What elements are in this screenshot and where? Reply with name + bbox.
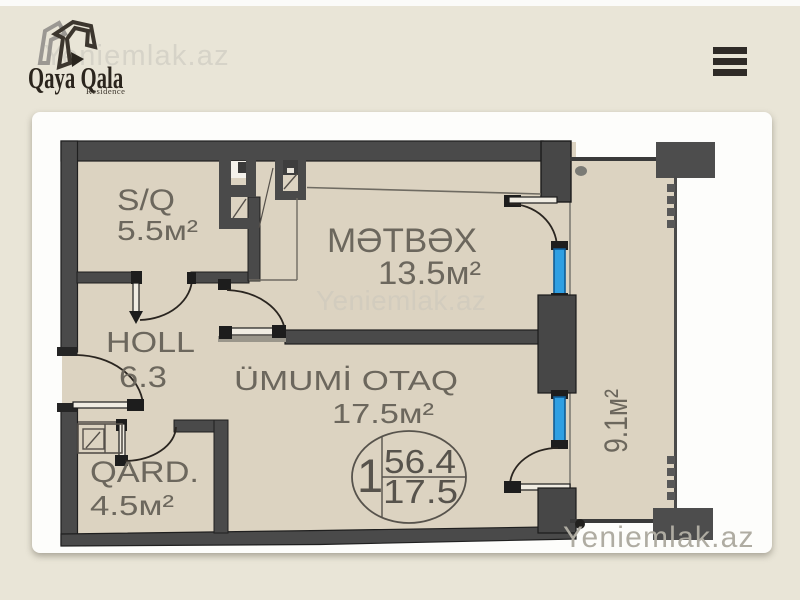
svg-text:9.1м²: 9.1м² (598, 389, 634, 453)
svg-text:17.5: 17.5 (383, 473, 458, 510)
svg-text:QARD.: QARD. (90, 456, 199, 489)
svg-text:4.5м²: 4.5м² (90, 490, 174, 521)
svg-text:6.3: 6.3 (119, 361, 167, 394)
svg-text:5.5м²: 5.5м² (117, 215, 198, 246)
svg-text:HOLL: HOLL (106, 327, 195, 359)
svg-text:1: 1 (357, 449, 383, 502)
svg-text:17.5м²: 17.5м² (332, 398, 434, 429)
svg-text:ÜMUMİ OTAQ: ÜMUMİ OTAQ (234, 365, 458, 396)
svg-text:S/Q: S/Q (117, 184, 175, 217)
